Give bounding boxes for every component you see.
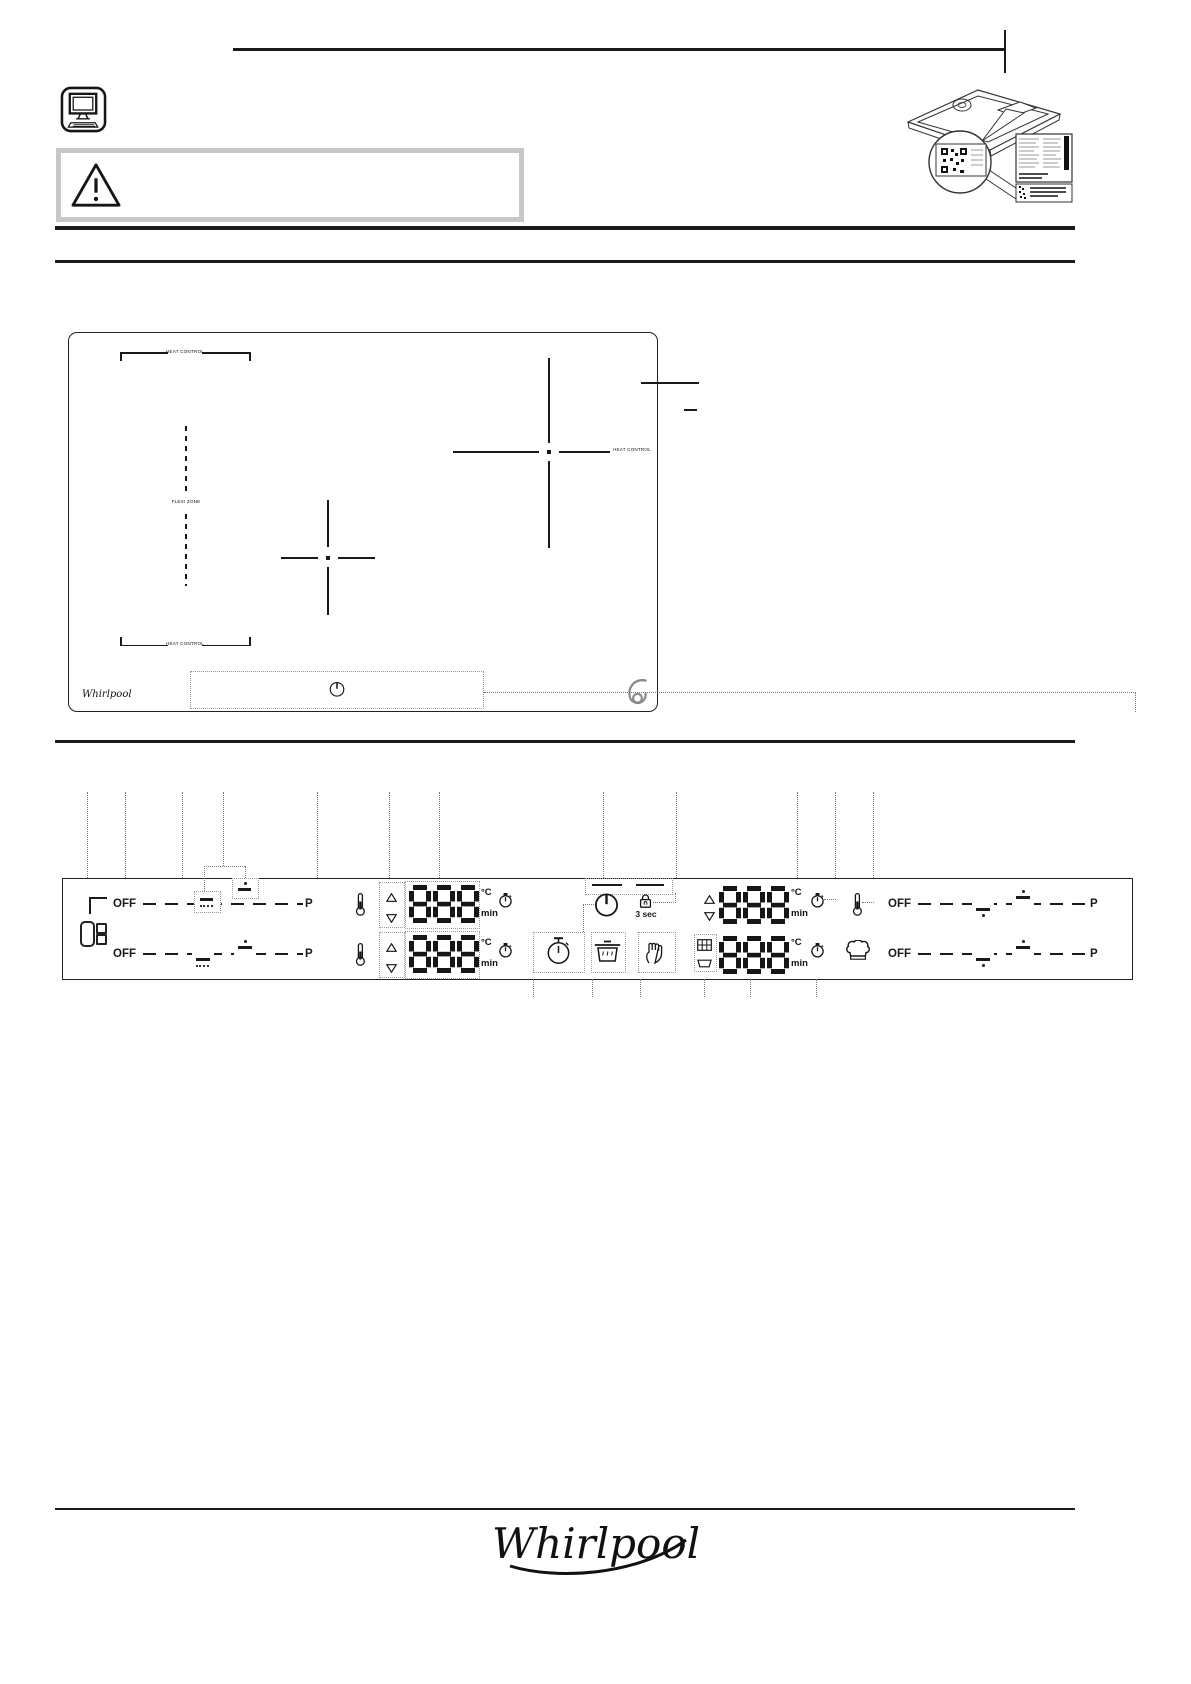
boost-label: P [1090, 899, 1098, 911]
warning-icon [70, 161, 122, 214]
slider-marker-dot [1022, 890, 1025, 893]
zone-select-bracket [89, 897, 91, 914]
timer-icon [811, 893, 824, 913]
pot-icon [594, 940, 621, 969]
power-icon [329, 681, 345, 702]
power-slider [918, 903, 1086, 905]
arrow-up-icon [386, 889, 397, 907]
arrow-up-icon [704, 891, 715, 909]
zone-select-bracket [89, 897, 107, 899]
display-7seg [719, 886, 789, 929]
leader-line [592, 979, 593, 997]
timer-icon [499, 893, 512, 913]
zone-bracket-bottom [202, 645, 250, 647]
leader-bracket [204, 866, 205, 891]
leader-line [439, 792, 440, 878]
online-manual-icon [60, 86, 107, 138]
arrow-down-icon [704, 908, 715, 926]
zone-crosshair [338, 557, 375, 559]
leader-line [533, 979, 534, 997]
header-rule [233, 48, 1005, 51]
minutes-label: min [791, 909, 808, 919]
power-zone-line [592, 884, 622, 886]
section-rule [55, 740, 1075, 743]
leader-line [653, 902, 676, 903]
zone-crosshair [327, 567, 329, 615]
boost-label: P [305, 949, 313, 961]
leader-line [873, 792, 874, 878]
slider-marker-dots [196, 965, 209, 967]
dish-icon [697, 955, 712, 973]
leader-line [484, 692, 1136, 693]
slider-marker [196, 958, 210, 961]
minutes-label: min [481, 909, 498, 919]
zone-crosshair [548, 358, 550, 443]
boost-label: P [1090, 949, 1098, 961]
whirlpool-logo-small: Whirlpool [82, 690, 132, 700]
arrow-down-icon [386, 910, 397, 928]
thermometer-icon [355, 942, 366, 971]
leader-line [835, 792, 836, 878]
slider-marker-dot [244, 882, 247, 885]
zone-label-right: HEAT CONTROL [613, 448, 659, 453]
section-rule [55, 260, 1075, 263]
whirlpool-logo: Whirlpool [486, 1512, 706, 1589]
leader-line [862, 902, 874, 903]
slider-marker [976, 958, 990, 961]
leader-line [797, 792, 798, 878]
warning-box [56, 148, 524, 222]
callout-line [641, 382, 699, 384]
display-7seg [719, 936, 789, 979]
zone-crosshair [281, 557, 318, 559]
slider-marker-box [194, 891, 221, 913]
leader-line [583, 904, 594, 905]
minutes-label: min [791, 959, 808, 969]
leader-line [583, 904, 584, 932]
zone-crosshair [327, 500, 329, 547]
minutes-label: min [481, 959, 498, 969]
flexi-zone-icon [96, 923, 107, 934]
off-label: OFF [888, 949, 911, 961]
leader-line [704, 979, 705, 997]
slider-marker [976, 908, 990, 911]
hob-illustration [898, 78, 1080, 206]
leader-line [750, 979, 751, 997]
leader-line [816, 979, 817, 997]
slider-marker-dot [244, 940, 247, 943]
power-slider [918, 953, 1086, 955]
boost-label: P [305, 899, 313, 911]
footer-rule [55, 1508, 1075, 1510]
sixth-sense-icon [622, 676, 656, 717]
grill-icon [697, 938, 712, 956]
display-7seg [409, 885, 479, 928]
flexi-zone-icon [80, 921, 95, 947]
flexi-zone-line [185, 426, 187, 492]
slider-marker [238, 888, 251, 891]
leader-line [223, 792, 224, 866]
slider-gap [1012, 900, 1034, 909]
timer-icon [811, 943, 824, 963]
hand-icon [644, 938, 668, 969]
leader-line [675, 893, 676, 903]
slider-marker-dot [982, 964, 985, 967]
slider-marker [238, 946, 252, 949]
timer-icon [499, 943, 512, 963]
celsius-label: °C [791, 938, 802, 948]
stopwatch-icon [546, 937, 571, 971]
zone-crosshair [453, 451, 539, 453]
zone-crosshair [559, 451, 610, 453]
leader-line [125, 792, 126, 878]
thermometer-icon [852, 892, 863, 921]
flexi-zone-label: FLEXI ZONE [160, 500, 212, 505]
leader-line [317, 792, 318, 878]
leader-line [640, 979, 641, 997]
leader-line [676, 792, 677, 878]
leader-line [182, 792, 183, 878]
leader-line [87, 792, 88, 878]
slider-marker [1016, 896, 1030, 899]
slider-marker-dot [982, 914, 985, 917]
celsius-label: °C [791, 888, 802, 898]
zone-bracket-bottom [249, 637, 251, 646]
slider-marker [1016, 946, 1030, 949]
callout-line [684, 409, 697, 411]
zone-crosshair [548, 461, 550, 548]
slider-marker-dot [1022, 940, 1025, 943]
section-rule [55, 226, 1075, 230]
slider-marker [200, 898, 213, 901]
off-label: OFF [113, 949, 136, 961]
zone-bracket-top [202, 352, 250, 354]
celsius-label: °C [481, 938, 492, 948]
arrow-down-icon [386, 960, 397, 978]
chef-hat-icon [845, 940, 871, 966]
leader-bracket [204, 866, 245, 867]
footer-brand-text: Whirlpool [492, 1519, 700, 1568]
display-7seg [409, 935, 479, 978]
slider-marker-box [232, 878, 259, 899]
celsius-label: °C [481, 888, 492, 898]
power-slider [143, 953, 303, 955]
arrow-up-icon [386, 939, 397, 957]
hold-label: 3 sec [631, 909, 661, 919]
power-slider [143, 903, 303, 905]
leader-line [824, 899, 836, 900]
flexi-zone-icon [96, 934, 107, 945]
off-label: OFF [888, 899, 911, 911]
leader-line [389, 792, 390, 878]
slider-marker-dots [200, 905, 213, 907]
power-button [594, 892, 619, 922]
thermometer-icon [355, 892, 366, 921]
hob-diagram [68, 332, 658, 712]
leader-bracket [245, 866, 246, 878]
zone-center-dot [326, 556, 330, 560]
slider-gap [234, 950, 256, 959]
header-rule-tick [1004, 30, 1006, 73]
zone-bracket-top [249, 352, 251, 361]
slider-gap [1012, 950, 1034, 959]
power-zone-line [636, 884, 664, 886]
off-label: OFF [113, 899, 136, 911]
leader-line [603, 792, 604, 878]
leader-line [1135, 692, 1136, 712]
zone-center-dot [547, 450, 551, 454]
flexi-zone-line [185, 514, 187, 586]
